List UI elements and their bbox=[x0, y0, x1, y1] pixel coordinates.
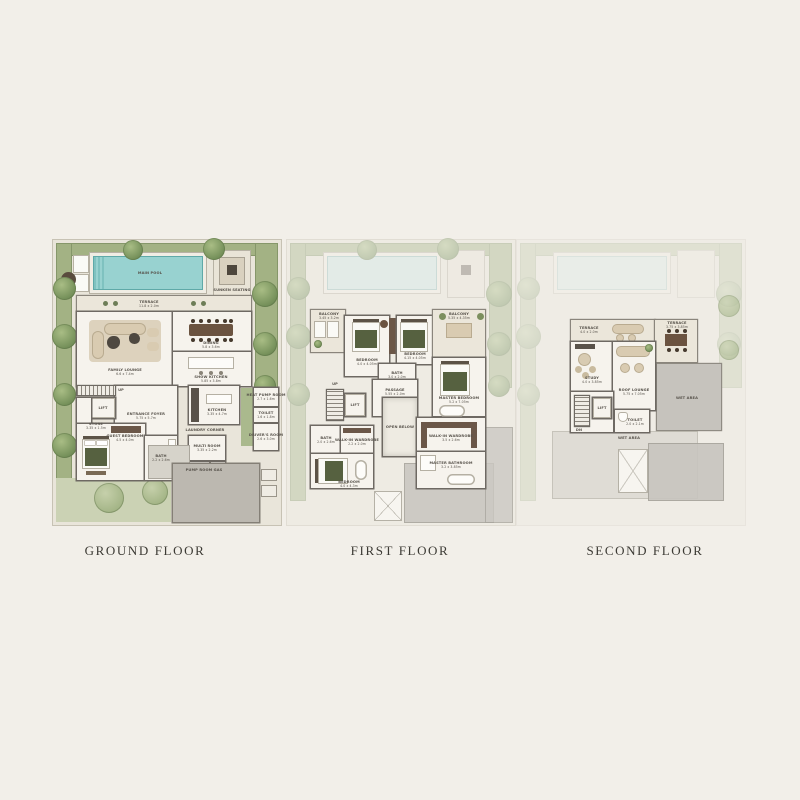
toilet-label: TOILET bbox=[259, 411, 274, 415]
bathtub-icon bbox=[355, 460, 367, 480]
utility-boxes bbox=[262, 470, 276, 480]
bed-blanket bbox=[325, 461, 343, 481]
bathtub-icon bbox=[439, 405, 465, 417]
skylight bbox=[619, 450, 647, 492]
chairs-icon bbox=[575, 366, 582, 373]
dining-table-icon bbox=[665, 334, 687, 346]
plant-icon bbox=[645, 344, 653, 352]
bath-left-label: BATH bbox=[320, 436, 331, 440]
study-label: STUDY bbox=[585, 376, 599, 380]
tree-icon bbox=[287, 383, 310, 406]
tree-icon bbox=[123, 240, 143, 260]
second-floor-plan: WET AREA TERRACE4.0 x 2.0m TERRACE3.75 x… bbox=[517, 240, 745, 525]
walkin-wardrobe-right-dim: 3.5 x 2.6m bbox=[429, 438, 473, 442]
heat-pump-room-dim: 2.7 x 1.6m bbox=[246, 397, 285, 401]
tree-icon bbox=[516, 324, 541, 349]
stairs bbox=[327, 390, 343, 420]
hedge-right bbox=[489, 243, 512, 388]
coffee-table-icon bbox=[129, 333, 140, 344]
family-lounge-label: FAMILY LOUNGE bbox=[108, 368, 142, 372]
armchair-icon bbox=[380, 320, 388, 328]
tree-icon bbox=[287, 277, 310, 300]
sofa-icon bbox=[93, 332, 103, 358]
tree-icon bbox=[53, 383, 76, 406]
show-kitchen-dim: 5.85 x 3.8m bbox=[194, 379, 227, 383]
floor-plans-page: MAIN POOL SUNKEN SEATING bbox=[0, 0, 800, 800]
balcony-left-label: BALCONY bbox=[319, 312, 339, 316]
terrace-chairs-icon bbox=[617, 335, 623, 341]
terrace-left-label: TERRACE bbox=[579, 326, 598, 330]
roof-lounge-dim: 5.75 x 7.05m bbox=[619, 392, 650, 396]
laundry-corner-label: LAUNDRY CORNER bbox=[186, 428, 225, 432]
lift-label: LIFT bbox=[98, 406, 107, 410]
drivers-room-dim: 2.6 x 3.0m bbox=[249, 437, 283, 441]
terrace-right-label: TERRACE bbox=[667, 321, 686, 325]
wardrobe-icon bbox=[111, 426, 141, 433]
bathtub-icon bbox=[447, 474, 475, 485]
open-below-label: OPEN BELOW bbox=[386, 425, 414, 429]
pool-steps bbox=[94, 257, 106, 289]
toilet-label: TOILET bbox=[628, 418, 643, 422]
tree-icon bbox=[253, 332, 277, 356]
main-pool bbox=[327, 256, 437, 290]
wardrobe-icon bbox=[343, 428, 371, 433]
wardrobe-icon bbox=[389, 318, 397, 354]
ground-floor-plan: MAIN POOL SUNKEN SEATING bbox=[53, 240, 281, 525]
tree-icon bbox=[437, 238, 459, 260]
lounge-chairs-icon bbox=[621, 364, 629, 372]
balcony-right-dim: 5.35 x 4.35m bbox=[448, 316, 470, 320]
ground-floor-caption: GROUND FLOOR bbox=[85, 543, 206, 559]
dining-dim: 5.8 x 3.6m bbox=[202, 345, 220, 349]
walkin-wardrobe-right-label: WALK-IN WARDROBE bbox=[429, 434, 473, 438]
multi-room-dim: 3.35 x 2.2m bbox=[193, 448, 220, 452]
guest-bedroom-dim: 4.5 x 4.0m bbox=[106, 438, 143, 442]
show-kitchen-label: SHOW KITCHEN bbox=[194, 375, 227, 379]
bedroom-2-dim: 4.15 x 4.05m bbox=[404, 356, 426, 360]
main-pool-label: MAIN POOL bbox=[138, 271, 162, 275]
dining-label: DINING bbox=[203, 341, 218, 345]
dining-chairs-icon bbox=[191, 319, 195, 323]
tree-icon bbox=[718, 295, 740, 317]
passage-label: PASSAGE bbox=[385, 388, 404, 392]
plant-icon bbox=[314, 340, 322, 348]
store-label: STORE bbox=[89, 422, 103, 426]
terrace-table-icon bbox=[447, 324, 471, 337]
sunken-seating-label: SUNKEN SEATING bbox=[213, 288, 250, 292]
tree-icon bbox=[52, 433, 77, 458]
toilet-dim: 2.0 x 2.1m bbox=[626, 422, 644, 426]
gas-label: GAS bbox=[214, 468, 223, 472]
tree-icon bbox=[488, 375, 510, 397]
kitchen-island-icon bbox=[189, 358, 233, 368]
bed-blanket bbox=[85, 448, 107, 466]
heat-pump-room-label: HEAT PUMP ROOM bbox=[246, 393, 285, 397]
entrance-foyer-label: ENTRANCE FOYER bbox=[127, 412, 165, 416]
main-pool bbox=[557, 256, 667, 290]
wet-area-right-label: WET AREA bbox=[676, 396, 698, 400]
terrace-right-dim: 3.75 x 3.85m bbox=[666, 325, 688, 329]
guest-bath-label: BATH bbox=[155, 454, 166, 458]
toilet-dim: 1.6 x 1.8m bbox=[257, 415, 275, 419]
wardrobe-icon bbox=[421, 422, 477, 428]
tree-icon bbox=[94, 483, 124, 513]
tree-icon bbox=[142, 479, 168, 505]
bed-bench-icon bbox=[86, 471, 106, 475]
kitchen-island-icon bbox=[207, 395, 231, 403]
wet-area-bottom-label: WET AREA bbox=[618, 436, 640, 440]
bed-blanket bbox=[355, 330, 377, 348]
entrance-foyer-dim: 5.75 x 5.7m bbox=[127, 416, 165, 420]
console-icon bbox=[575, 344, 595, 349]
tree-icon bbox=[517, 277, 540, 300]
sunken-seating-area bbox=[677, 250, 715, 298]
second-floor-caption: SECOND FLOOR bbox=[586, 543, 703, 559]
kitchen-counter-icon bbox=[191, 388, 199, 422]
kitchen-label: KITCHEN bbox=[208, 408, 227, 412]
bedroom-2-label: BEDROOM bbox=[404, 352, 426, 356]
walkin-wardrobe-left-dim: 2.2 x 2.0m bbox=[335, 442, 379, 446]
tree-icon bbox=[486, 281, 512, 307]
walkin-wardrobe-left-label: WALK-IN WARDROBE bbox=[335, 438, 379, 442]
fire-table-icon bbox=[461, 265, 471, 275]
pump-room-label: PUMP ROOM bbox=[186, 468, 213, 472]
master-bedroom-dim: 5.2 x 7.05m bbox=[439, 400, 479, 404]
dining-table-icon bbox=[189, 324, 233, 336]
bed-blanket bbox=[443, 372, 467, 391]
roof-lounge-label: ROOF LOUNGE bbox=[619, 388, 650, 392]
tree-icon bbox=[252, 281, 278, 307]
kitchen-dim: 3.35 x 4.7m bbox=[207, 412, 227, 416]
bedroom-1-label: BEDROOM bbox=[338, 480, 360, 484]
stairs bbox=[77, 386, 115, 395]
balcony-right-label: BALCONY bbox=[449, 312, 469, 316]
fire-table-icon bbox=[227, 265, 237, 275]
bed-blanket bbox=[403, 330, 425, 348]
bath-mid-dim: 3.0 x 2.0m bbox=[388, 375, 406, 379]
pillows-icon bbox=[85, 441, 95, 445]
guest-bath-dim: 2.2 x 2.6m bbox=[152, 458, 170, 462]
passage-dim: 5.55 x 2.0m bbox=[385, 392, 405, 396]
tree-icon bbox=[203, 238, 225, 260]
side-roof bbox=[486, 428, 512, 522]
terrace-label: TERRACE bbox=[139, 300, 158, 304]
first-floor-caption: FIRST FLOOR bbox=[351, 543, 450, 559]
armchair-icon bbox=[147, 328, 159, 337]
stairs bbox=[575, 396, 589, 426]
tree-icon bbox=[286, 324, 311, 349]
stairs-dn-label: DN bbox=[576, 428, 582, 432]
terrace-left-dim: 4.0 x 2.0m bbox=[579, 330, 598, 334]
garage-roof bbox=[649, 444, 723, 500]
planter-pots-icon bbox=[103, 301, 108, 306]
wardrobe-icon bbox=[421, 428, 427, 448]
stairs-up-label: UP bbox=[118, 388, 124, 392]
garage bbox=[173, 464, 259, 522]
terrace-dim: 11.8 x 2.0m bbox=[139, 304, 159, 308]
study-dim: 4.0 x 3.85m bbox=[582, 380, 602, 384]
drivers-room-label: DRIVER'S ROOM bbox=[249, 433, 283, 437]
tree-icon bbox=[53, 277, 76, 300]
loungers-icon bbox=[315, 322, 325, 337]
tree-icon bbox=[357, 240, 377, 260]
dining-chairs-icon bbox=[667, 329, 671, 333]
lift-label: LIFT bbox=[350, 403, 359, 407]
skylight bbox=[375, 492, 401, 520]
master-bathroom-dim: 3.2 x 3.85m bbox=[429, 465, 472, 469]
bedroom-3-dim: 4.0 x 4.05m bbox=[356, 362, 378, 366]
family-lounge-dim: 6.6 x 7.4m bbox=[108, 372, 142, 376]
sofa-icon bbox=[105, 324, 145, 334]
lift-label: LIFT bbox=[597, 406, 606, 410]
master-bedroom-label: MASTER BEDROOM bbox=[439, 396, 479, 400]
plants-icon bbox=[439, 313, 446, 320]
sun-lounger bbox=[74, 256, 88, 272]
tree-icon bbox=[487, 332, 511, 356]
store-room bbox=[77, 398, 91, 424]
stairs-up-label: UP bbox=[332, 382, 338, 386]
first-floor-plan: BALCONY3.45 x 3.2m BEDROOM4.0 x 4.05m BE… bbox=[287, 240, 515, 525]
bath-mid-label: BATH bbox=[391, 371, 402, 375]
store-dim: 3.35 x 1.5m bbox=[86, 426, 106, 430]
bedroom-1-dim: 4.0 x 4.3m bbox=[338, 484, 360, 488]
terrace-sofa-icon bbox=[613, 325, 643, 333]
tree-icon bbox=[517, 383, 540, 406]
sun-lounger bbox=[74, 275, 88, 291]
hedge-right bbox=[255, 243, 278, 388]
master-bathroom-label: MASTER BATHROOM bbox=[429, 461, 472, 465]
balcony-left-dim: 3.45 x 3.2m bbox=[319, 316, 339, 320]
tree-icon bbox=[52, 324, 77, 349]
guest-bedroom-label: GUEST BEDROOM bbox=[106, 434, 143, 438]
bedroom-3-label: BEDROOM bbox=[356, 358, 378, 362]
tree-icon bbox=[719, 340, 739, 360]
bath-left-dim: 2.0 x 2.6m bbox=[317, 440, 335, 444]
table-icon bbox=[579, 354, 590, 365]
multi-room-label: MULTI ROOM bbox=[193, 444, 220, 448]
